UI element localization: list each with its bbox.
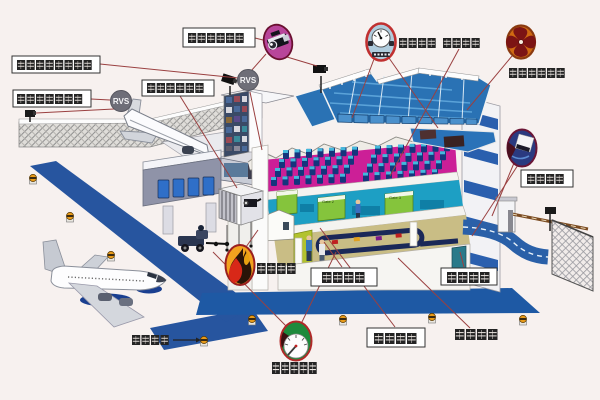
svg-text:RVS: RVS <box>240 76 257 85</box>
svg-text:RVS: RVS <box>113 97 130 106</box>
svg-text:Gate 2: Gate 2 <box>322 199 335 204</box>
svg-text:Gate 3: Gate 3 <box>389 195 402 200</box>
